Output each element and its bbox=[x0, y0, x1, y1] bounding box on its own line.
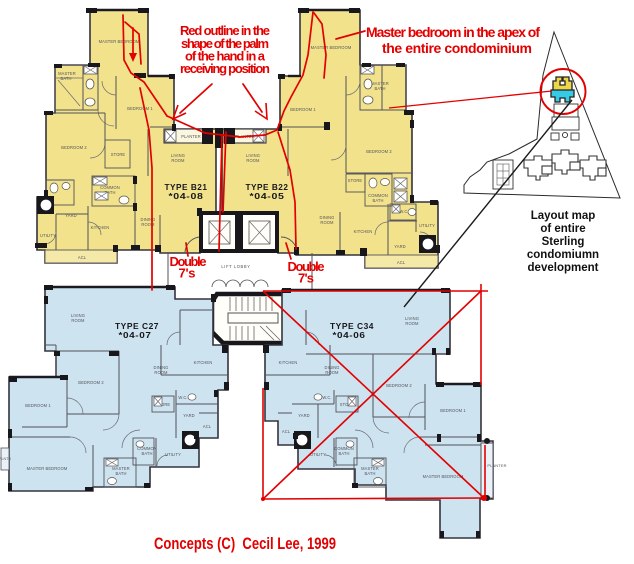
svg-text:ACL: ACL bbox=[203, 424, 212, 429]
svg-text:BEDROOM 2: BEDROOM 2 bbox=[78, 380, 104, 385]
svg-text:PLNTR: PLNTR bbox=[0, 457, 11, 461]
svg-text:ROOM: ROOM bbox=[71, 318, 85, 323]
svg-text:Sterling: Sterling bbox=[542, 236, 585, 248]
svg-text:UTILITY: UTILITY bbox=[419, 223, 435, 228]
svg-text:YARD: YARD bbox=[394, 244, 405, 249]
svg-text:7's: 7's bbox=[179, 266, 196, 281]
svg-text:W.C.: W.C. bbox=[322, 395, 331, 400]
svg-text:BATH: BATH bbox=[372, 198, 383, 203]
svg-text:W.C.: W.C. bbox=[399, 209, 408, 214]
svg-text:KITCHEN: KITCHEN bbox=[194, 360, 213, 365]
svg-text:BATH: BATH bbox=[364, 471, 375, 476]
svg-text:PLANTER: PLANTER bbox=[487, 463, 506, 468]
svg-text:receiving position: receiving position bbox=[180, 61, 270, 76]
svg-text:YARD: YARD bbox=[183, 413, 194, 418]
svg-text:ACL: ACL bbox=[397, 260, 406, 265]
svg-text:*04-07: *04-07 bbox=[119, 331, 152, 340]
svg-text:TYPE B21: TYPE B21 bbox=[165, 183, 208, 192]
svg-text:TYPE C34: TYPE C34 bbox=[330, 322, 374, 331]
svg-text:YARD: YARD bbox=[65, 213, 76, 218]
svg-text:BEDROOM 1: BEDROOM 1 bbox=[440, 408, 466, 413]
svg-text:BATH: BATH bbox=[60, 76, 71, 81]
svg-text:BEDROOM 1: BEDROOM 1 bbox=[25, 403, 51, 408]
svg-text:ROOM: ROOM bbox=[405, 321, 419, 326]
svg-text:TYPE B22: TYPE B22 bbox=[246, 183, 289, 192]
svg-text:W.C.: W.C. bbox=[178, 395, 187, 400]
svg-text:BEDROOM 2: BEDROOM 2 bbox=[366, 149, 392, 154]
svg-text:ROOM: ROOM bbox=[246, 158, 260, 163]
svg-text:BEDROOM 1: BEDROOM 1 bbox=[290, 107, 316, 112]
svg-text:*04-05: *04-05 bbox=[250, 192, 285, 201]
svg-text:ROOM: ROOM bbox=[141, 222, 155, 227]
svg-text:ROOM: ROOM bbox=[320, 220, 334, 225]
svg-text:KITCHEN: KITCHEN bbox=[354, 229, 373, 234]
svg-text:TYPE C27: TYPE C27 bbox=[115, 322, 159, 331]
svg-text:*04-08: *04-08 bbox=[169, 192, 204, 201]
svg-text:ACL: ACL bbox=[282, 429, 291, 434]
svg-text:UTILITY: UTILITY bbox=[40, 233, 56, 238]
svg-text:UTILITY: UTILITY bbox=[165, 452, 181, 457]
svg-text:KITCHEN: KITCHEN bbox=[279, 360, 298, 365]
svg-text:the entire condominium: the entire condominium bbox=[382, 40, 532, 56]
svg-text:development: development bbox=[528, 262, 599, 274]
svg-text:ROOM: ROOM bbox=[325, 370, 339, 375]
svg-text:BATH: BATH bbox=[141, 451, 152, 456]
svg-text:BEDROOM 2: BEDROOM 2 bbox=[386, 383, 412, 388]
svg-text:Master bedroom in the apex of: Master bedroom in the apex of bbox=[366, 24, 540, 40]
svg-text:Concepts (C) Cecil Lee, 1999: Concepts (C) Cecil Lee, 1999 bbox=[154, 534, 336, 553]
svg-text:BEDROOM 2: BEDROOM 2 bbox=[61, 145, 87, 150]
svg-text:Layout map: Layout map bbox=[531, 210, 596, 222]
svg-text:of entire: of entire bbox=[540, 223, 585, 235]
svg-text:*04-06: *04-06 bbox=[333, 331, 366, 340]
svg-text:MASTER BEDROOM: MASTER BEDROOM bbox=[423, 474, 464, 479]
svg-text:7's: 7's bbox=[298, 271, 314, 286]
svg-text:STORE: STORE bbox=[348, 178, 363, 183]
svg-text:LIFT LOBBY: LIFT LOBBY bbox=[221, 264, 250, 269]
svg-text:ACL: ACL bbox=[78, 255, 87, 260]
svg-text:BATH: BATH bbox=[338, 451, 349, 456]
svg-text:BEDROOM 1: BEDROOM 1 bbox=[127, 106, 153, 111]
svg-text:BATH: BATH bbox=[374, 86, 385, 91]
svg-text:STORE: STORE bbox=[111, 152, 126, 157]
svg-text:condomiumn: condomiumn bbox=[527, 249, 599, 261]
svg-text:PLANTER: PLANTER bbox=[181, 134, 201, 139]
svg-text:MASTER BEDROOM: MASTER BEDROOM bbox=[27, 466, 68, 471]
svg-text:ROOM: ROOM bbox=[171, 158, 185, 163]
svg-text:YARD: YARD bbox=[298, 413, 309, 418]
svg-text:MASTER BEDROOM: MASTER BEDROOM bbox=[311, 45, 352, 50]
svg-text:BATH: BATH bbox=[115, 471, 126, 476]
